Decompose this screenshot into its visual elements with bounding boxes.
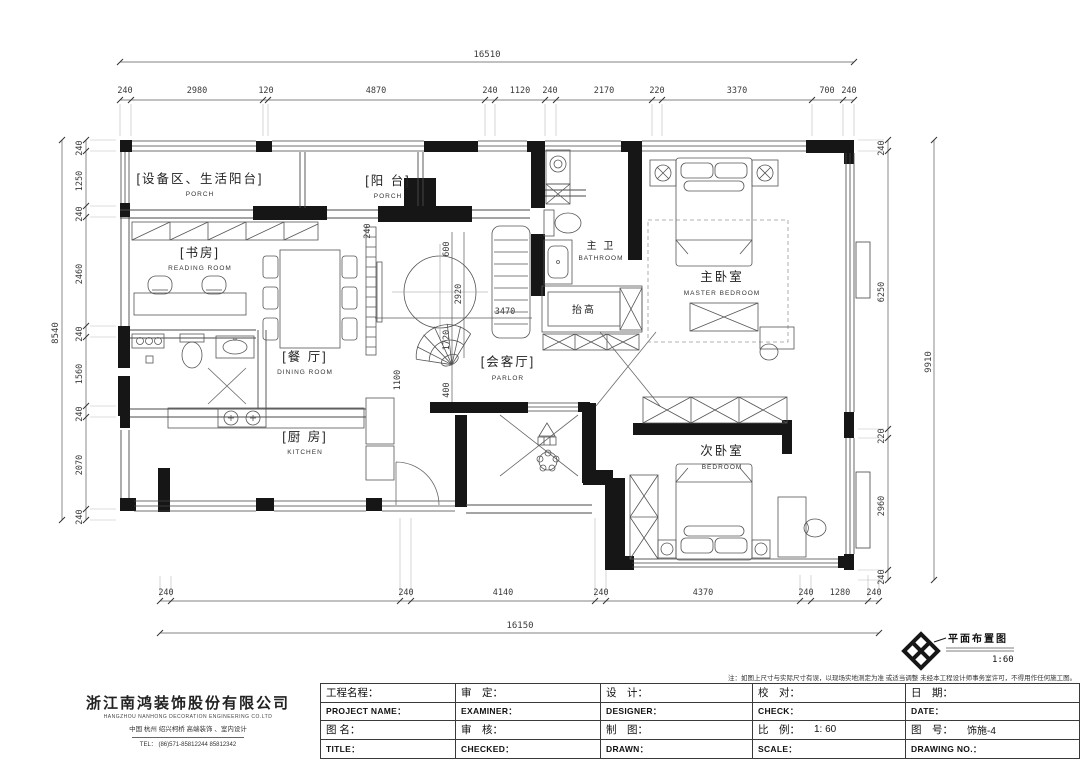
floor-plan-sheet: 16510 240 2980 120 4870 240 1120 240 217… — [0, 0, 1080, 761]
dim: 240 — [75, 206, 85, 221]
dim: 240 — [877, 140, 887, 155]
scale-value: 1: 60 — [814, 724, 836, 735]
field-project-en: PROJECT NAME： — [326, 705, 406, 717]
field-scale-en: SCALE： — [758, 743, 797, 755]
legend-stamp-icon — [901, 631, 941, 671]
dim: 2980 — [187, 86, 207, 96]
interior-walls — [120, 152, 592, 513]
furniture — [132, 150, 826, 560]
room-bedroom-cn: 次卧室 — [700, 443, 744, 458]
field-title-cn: 图 名： — [326, 722, 360, 737]
master-desk — [760, 327, 794, 360]
bedroom-desk — [778, 497, 826, 557]
drawing-no-value: 饰施-4 — [967, 722, 996, 737]
dim: 220 — [649, 86, 664, 96]
dim: 1560 — [75, 364, 85, 384]
dim: 240 — [866, 588, 881, 598]
dim: 240 — [877, 569, 887, 584]
guestbath-door-swing — [208, 368, 246, 404]
dim-right-total: 9910 — [924, 351, 934, 373]
dim: 2070 — [75, 455, 85, 475]
field-draft-en: DRAWN： — [606, 743, 648, 755]
company-tel: TEL： (86)571-85812244 85812342 — [132, 737, 244, 748]
raised-platform — [542, 286, 642, 350]
field-scale-cn: 比 例： — [758, 722, 800, 737]
dim-bottom-total: 16150 — [506, 621, 533, 631]
dim: 240 — [841, 86, 856, 96]
entry-door-swing — [500, 415, 578, 476]
dim-top-total: 16510 — [473, 50, 500, 60]
field-no-cn: 图 号： — [911, 722, 953, 737]
rattan-chair — [407, 314, 479, 377]
dining-table — [263, 250, 357, 348]
room-kitchen-en: KITCHEN — [287, 449, 323, 456]
dim: 3370 — [727, 86, 747, 96]
room-porch1-cn: [设备区、生活阳台] — [137, 171, 264, 186]
room-porch1-en: PORCH — [186, 191, 214, 198]
master-closet — [643, 397, 787, 423]
dim: 240 — [482, 86, 497, 96]
dim-left-total: 8540 — [51, 322, 61, 344]
field-examine-cn: 审 定： — [461, 685, 503, 700]
dim: 2920 — [454, 284, 464, 304]
floor-plan-drawing: 16510 240 2980 120 4870 240 1120 240 217… — [0, 0, 1080, 761]
room-bathroom-cn: 主 卫 — [587, 240, 616, 252]
field-audit-cn: 审 核： — [461, 722, 503, 737]
kitchen-door-swing — [396, 462, 439, 505]
dim: 240 — [542, 86, 557, 96]
room-raised-cn: 抬高 — [572, 303, 596, 316]
dim: 400 — [442, 382, 452, 397]
dim: 4140 — [493, 588, 513, 598]
room-master-en: MASTER BEDROOM — [684, 290, 760, 297]
dim: 240 — [75, 509, 85, 524]
field-date-en: DATE： — [911, 705, 944, 717]
master-bench — [690, 303, 758, 331]
reading-room-desk — [134, 276, 246, 315]
dimension-labels: 16510 240 2980 120 4870 240 1120 240 217… — [51, 50, 934, 631]
dim: 1120 — [510, 86, 530, 96]
room-kitchen-cn: [厨 房] — [282, 429, 327, 444]
dim: 240 — [75, 326, 85, 341]
room-parlor-en: PARLOR — [492, 375, 524, 382]
master-door-swing — [596, 332, 660, 406]
dim: 240 — [798, 588, 813, 598]
dim: 240 — [75, 140, 85, 155]
drawing-note: 注：如图上尺寸与实际尺寸有误，以现场实地测定为准 或适当调整 未经本工程设计师事… — [728, 672, 1078, 682]
room-bathroom-en: BATHROOM — [578, 255, 623, 262]
dim: 240 — [158, 588, 173, 598]
room-master-cn: 主卧室 — [700, 269, 744, 284]
room-porch2-en: PORCH — [374, 193, 402, 200]
legend: 平面布置图 1:60 — [901, 631, 1014, 671]
dim: 1250 — [75, 171, 85, 191]
dim: 240 — [75, 406, 85, 421]
dim: 1280 — [830, 588, 850, 598]
dim: 2170 — [594, 86, 614, 96]
company-name-en: HANGZHOU NANHONG DECORATION ENGINEERING … — [58, 714, 318, 720]
bedroom-wardrobe — [630, 475, 658, 559]
room-bedroom-en: BEDROOM — [702, 464, 743, 471]
guest-bathroom-fixtures — [132, 334, 254, 368]
dim: 240 — [593, 588, 608, 598]
field-examine-en: EXAMINER： — [461, 705, 517, 717]
room-porch2-cn: [阳 台] — [365, 173, 410, 188]
room-reading-en: READING ROOM — [168, 265, 232, 272]
dim: 600 — [442, 241, 452, 256]
field-check-en: CHECK： — [758, 705, 799, 717]
dim: 240 — [398, 588, 413, 598]
bedroom-bed — [658, 464, 770, 560]
room-reading-cn: [书房] — [180, 245, 220, 260]
bathroom-fixtures — [544, 150, 581, 284]
field-check-cn: 校 对： — [758, 685, 800, 700]
dimension-ticks — [59, 59, 937, 636]
dim: 4370 — [693, 588, 713, 598]
field-project-cn: 工程名程： — [326, 685, 379, 700]
dim: 240 — [117, 86, 132, 96]
legend-title: 平面布置图 — [948, 632, 1008, 645]
field-date-cn: 日 期： — [911, 685, 953, 700]
tv-wall — [366, 227, 382, 355]
reading-room-cabinet — [132, 222, 318, 240]
room-parlor-cn: [会客厅] — [481, 354, 535, 369]
field-design-cn: 设 计： — [606, 685, 648, 700]
dim: 1100 — [393, 370, 403, 390]
legend-scale: 1:60 — [992, 655, 1014, 665]
field-design-en: DESIGNER： — [606, 705, 662, 717]
dim: 2960 — [877, 496, 887, 516]
dim: 220 — [877, 428, 887, 443]
dim: 2460 — [75, 264, 85, 284]
kitchen-counter — [168, 398, 394, 480]
field-no-en: DRAWING NO.： — [911, 743, 982, 755]
company-block: 浙江南鸿装饰股份有限公司 HANGZHOU NANHONG DECORATION… — [58, 692, 318, 751]
field-audit-en: CHECKED： — [461, 743, 514, 755]
dim: 4870 — [366, 86, 386, 96]
dim: 6250 — [877, 282, 887, 302]
dim: 120 — [258, 86, 273, 96]
dimension-chains — [62, 62, 934, 633]
field-title-en: TITLE： — [326, 743, 360, 755]
dim: 700 — [819, 86, 834, 96]
sofa — [492, 226, 530, 338]
dim: 240 — [363, 223, 373, 238]
company-tagline: 中国 杭州 绍兴柯桥 高端装饰 、室内设计 — [58, 723, 318, 733]
title-block-table: 工程名程： 审 定： 设 计： 校 对： 日 期： PROJECT NAME： … — [320, 683, 1080, 759]
room-dining-en: DINING ROOM — [277, 369, 333, 376]
field-draft-cn: 制 图： — [606, 722, 648, 737]
room-dining-cn: [餐 厅] — [282, 349, 327, 364]
company-name: 浙江南鸿装饰股份有限公司 — [58, 692, 318, 713]
